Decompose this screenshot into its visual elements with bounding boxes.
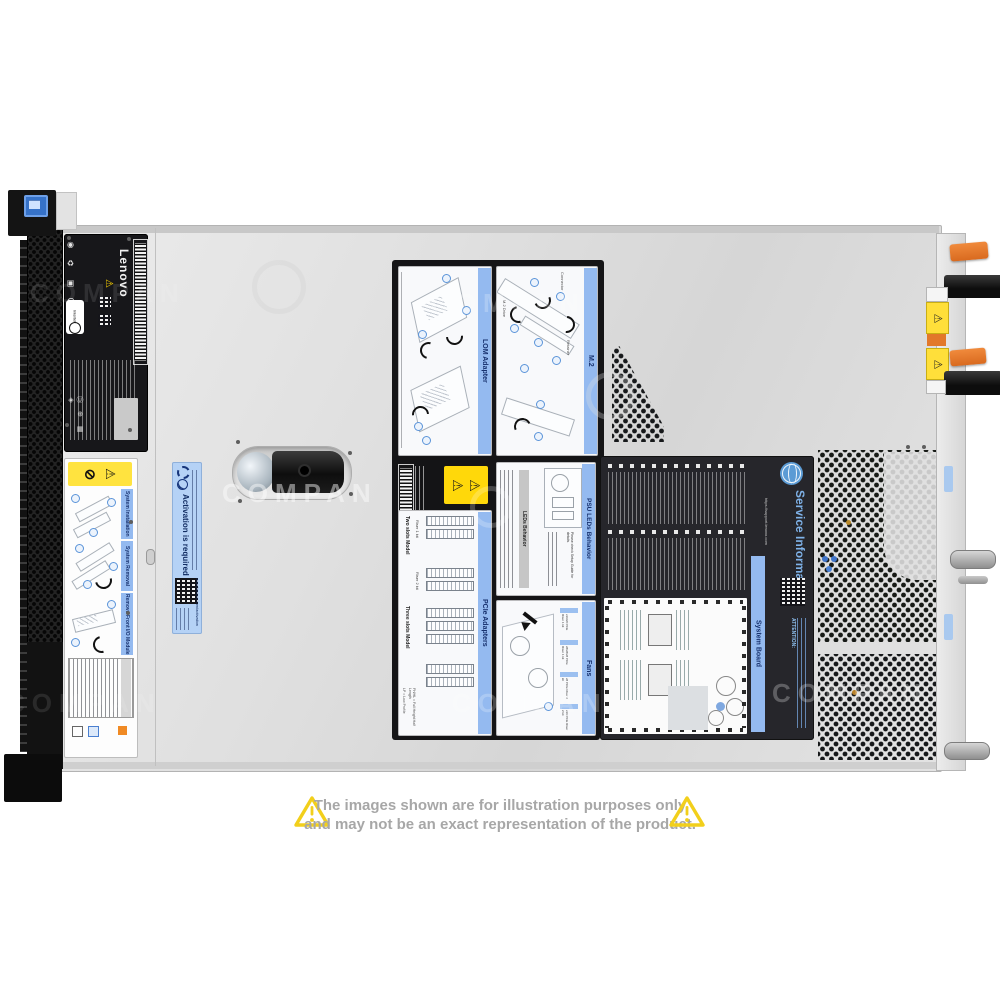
service-info-legend-markers-1	[608, 464, 746, 468]
gear-icon	[177, 466, 190, 479]
install-label-footer-icon-2	[88, 726, 99, 737]
rack-ear-bottom	[4, 754, 62, 802]
vent-grid-upper-open-area	[884, 452, 936, 580]
psu-sketch	[544, 468, 582, 528]
rear-orange-label	[927, 334, 946, 346]
fans-kit-2: x8/x8/x8 PCIe Riser 1 kit	[561, 646, 569, 668]
psu-table-header: LEDs Behavior	[519, 470, 529, 588]
fans-kit-header-1	[560, 608, 578, 613]
watermark-text-6: COMPAN	[30, 278, 186, 309]
psu1-info-label	[926, 287, 948, 302]
pcie-footnote-2: FH/HL = Full Height Half Length	[408, 688, 416, 734]
rear-blue-clip-2	[944, 614, 953, 640]
intertek-ring-icon	[69, 322, 81, 334]
fans-kit-1: x16/x8 PCIe Riser 1 kit	[561, 614, 569, 636]
cmos-battery	[716, 702, 725, 711]
cover-bottom-edge	[56, 762, 939, 769]
disclaimer-line-2: and may not be an exact representation o…	[0, 815, 1000, 834]
lom-sketch-2	[408, 362, 472, 448]
service-info-attention: ATTENTION:	[790, 618, 796, 728]
pcie-group-1-label: Two slots Model	[404, 516, 410, 580]
rear-thumbscrew-1[interactable]	[950, 550, 996, 569]
m2-card-title: M.2	[584, 268, 597, 454]
lom-caption	[401, 272, 405, 448]
watermark-logo-ring-3	[470, 486, 512, 528]
cover-latch-holes	[146, 549, 155, 565]
pcie-group-2-label: Three slots Model	[404, 606, 410, 672]
service-info-legend-1	[608, 472, 746, 524]
psu1-warning-label: ⚠	[926, 302, 949, 334]
install-section-3-sketch	[69, 594, 119, 652]
label-qr-box-2	[98, 314, 111, 327]
pcie-footnote-1: LP = Low Profile	[402, 688, 406, 734]
vent-blue-led-3	[826, 566, 832, 572]
rear-thumbscrew-2[interactable]	[944, 742, 990, 760]
system-board-diagram	[604, 598, 747, 734]
activation-fine-print-2	[176, 608, 192, 630]
system-board-strip: System Board	[751, 556, 765, 732]
install-label-footer-icon-1	[72, 726, 83, 737]
psu-led-rows	[500, 470, 516, 588]
fans-kit-header-3	[560, 672, 578, 677]
watermark-text-3: COMPAN	[452, 688, 608, 719]
vent-blue-led-2	[831, 556, 837, 562]
service-info-qr	[780, 578, 805, 606]
psu2-info-label	[926, 380, 946, 394]
label-gray-block	[114, 398, 138, 440]
install-section-2-title: System Removal	[121, 541, 133, 591]
install-section-2-sketch	[69, 542, 119, 590]
cover-top-edge	[56, 226, 939, 233]
install-label-footer-orange-square	[118, 726, 127, 735]
latch-handle-pivot	[300, 466, 309, 475]
watermark-text-4: COMPAN	[772, 678, 928, 709]
vent-amber-dot-1	[846, 520, 851, 525]
chassis-corner-bracket	[56, 192, 77, 230]
certification-icons-2: Ⓤ ⊕ ▦ ◈	[66, 396, 84, 446]
disclaimer-text: The images shown are for illustration pu…	[0, 796, 1000, 834]
psu2-handle[interactable]	[944, 371, 1000, 395]
psu2-release-tab[interactable]	[949, 347, 986, 366]
m2-sketch-2	[500, 390, 578, 450]
m2-callout-retainer: Retainer	[566, 340, 571, 366]
disclaimer-line-1: The images shown are for illustration pu…	[0, 796, 1000, 815]
install-section-1-title: System Installation	[121, 489, 133, 539]
front-diagnostic-screen	[29, 200, 40, 209]
service-info-attention-text	[797, 618, 809, 728]
clock-icon	[177, 479, 188, 490]
install-section-1-sketch	[69, 490, 119, 538]
disclaimer-warning-icon-right	[668, 794, 706, 830]
rear-blue-clip-1	[944, 466, 953, 492]
watermark-text-2: COMPAN	[430, 288, 586, 319]
psu-note: Please check Setup Guide for details.	[566, 532, 574, 590]
service-info-legend-2	[608, 538, 746, 590]
psu-led-callouts	[548, 532, 558, 586]
header-warning-icon: ⚠	[102, 468, 118, 480]
activation-url: www.lenovo.com/activation	[195, 578, 200, 632]
watermark-logo-ring-2	[586, 372, 634, 420]
install-label-warning-header: ⊘ ⚠	[68, 462, 132, 486]
no-lift-icon: ⊘	[82, 468, 99, 480]
watermark-logo-ring-1	[252, 260, 306, 314]
psu2-warning-icon: ⚠	[931, 359, 944, 369]
psu1-warning-icon: ⚠	[931, 313, 944, 323]
watermark-text-1: COMPAN	[222, 478, 378, 509]
sticker-warning-icon-1: ⚠	[449, 479, 466, 492]
pcie-riser2-label: Riser 2 kit	[415, 572, 420, 616]
rear-pin	[958, 576, 988, 584]
psu1-handle[interactable]	[944, 275, 1000, 298]
psu-card-title: PSU LEDs Behavior	[582, 464, 595, 594]
watermark-text-5: COMPAN	[6, 688, 162, 719]
install-section-3-title: Remove Front I/O Module	[121, 593, 133, 655]
service-info-legend-markers-2	[608, 530, 746, 534]
vent-blue-led-1	[822, 556, 828, 562]
pcie-riser1-label: Riser 1 kit	[415, 520, 420, 564]
psu1-release-tab[interactable]	[949, 241, 988, 261]
fans-kit-header-2	[560, 640, 578, 645]
product-photo-lenovo-server-top-view: Lenovo ◉ ♻ ▣ CE ⚠ Intertek ⚠ Ⓤ ⊕ ▦ ◈ ⊘ ⚠…	[0, 0, 1000, 1000]
globe-icon	[780, 462, 803, 485]
activation-fine-print	[192, 470, 199, 570]
